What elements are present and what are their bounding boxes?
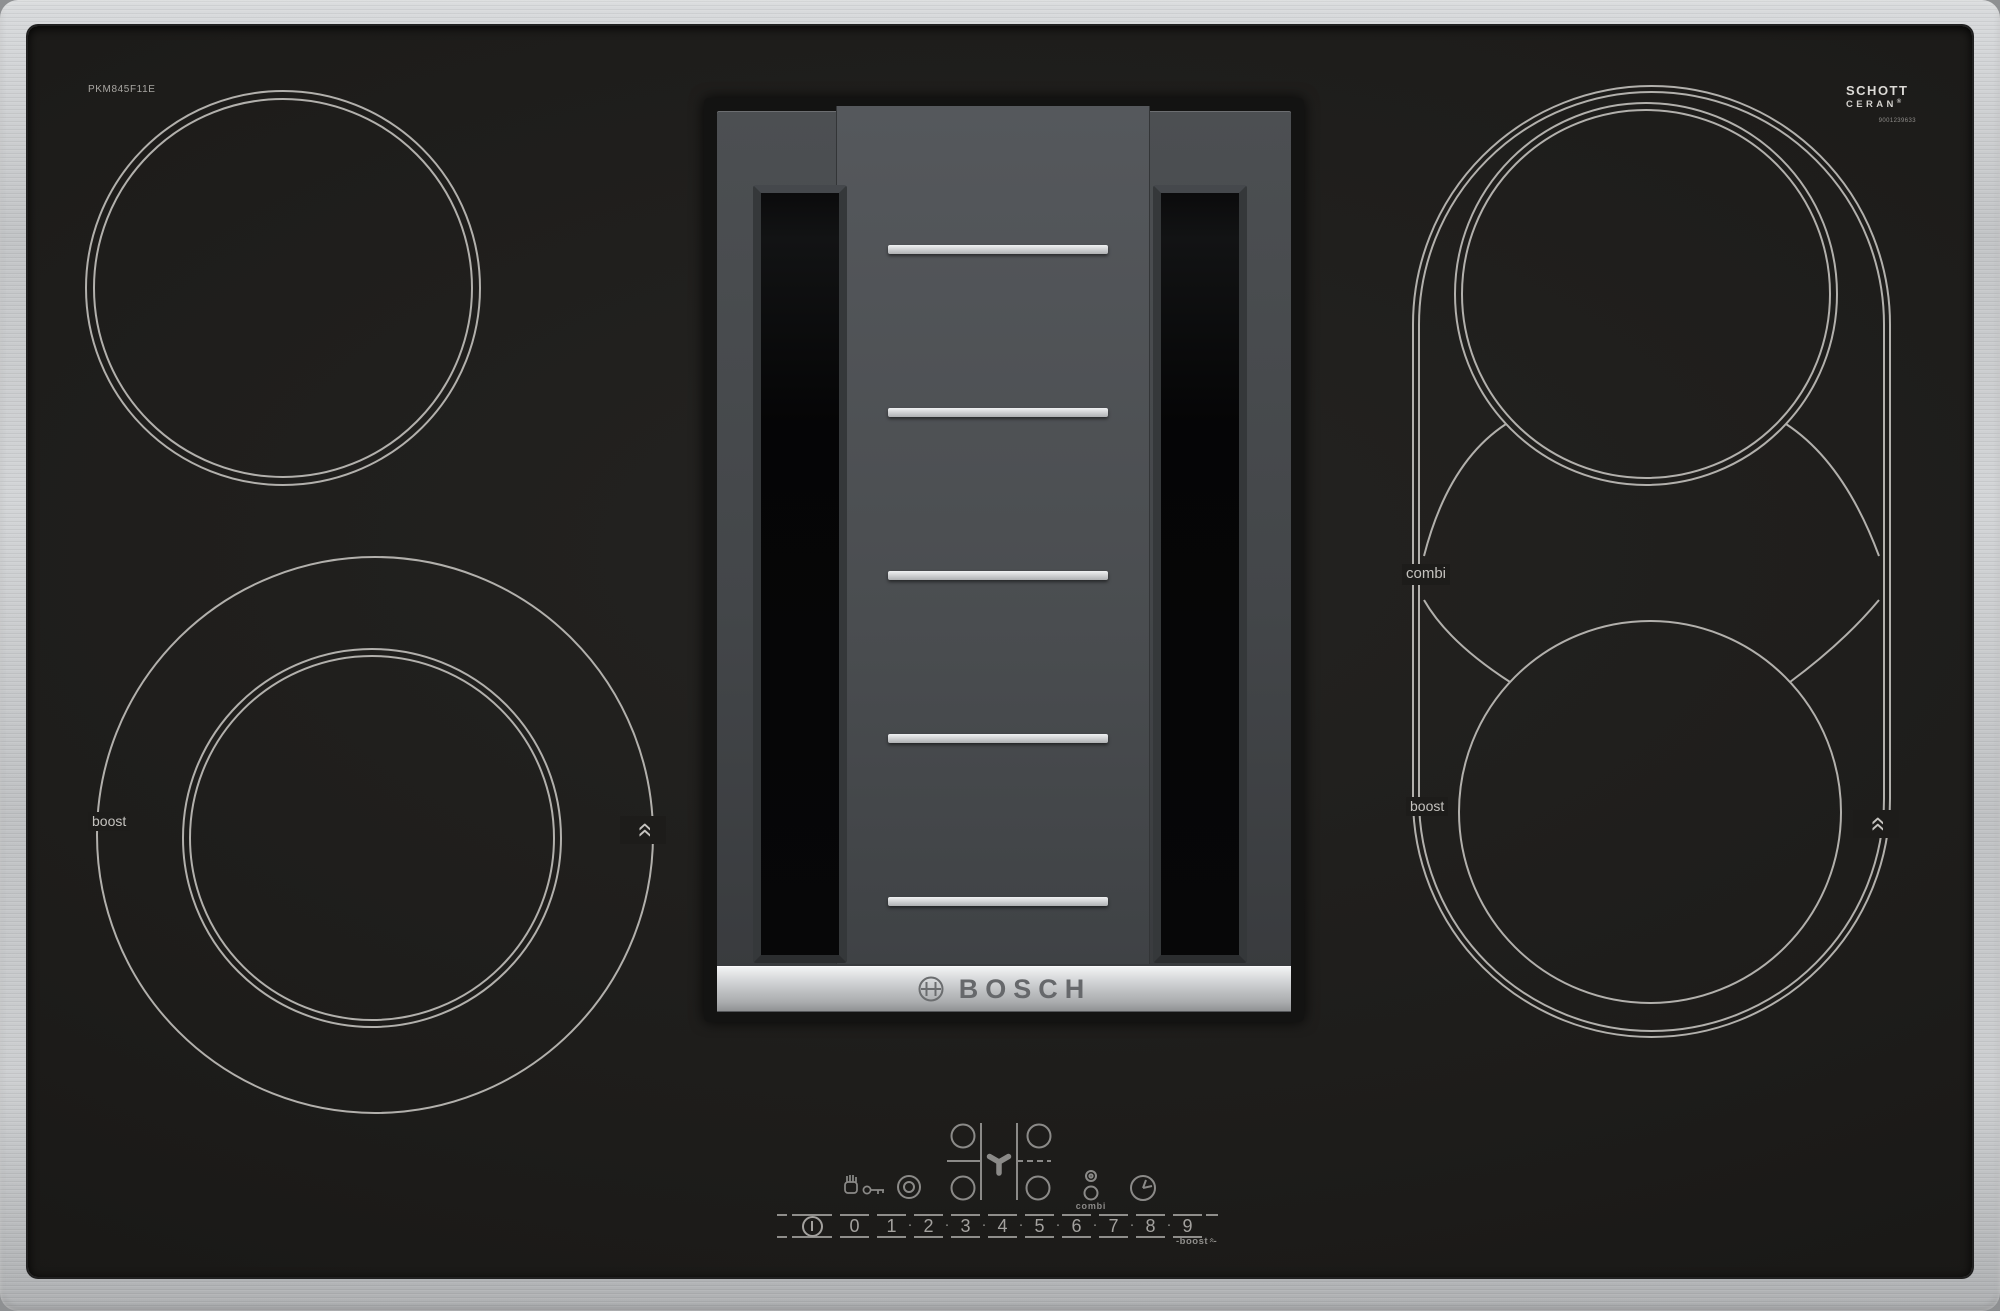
registered-mark: ®	[1897, 99, 1901, 105]
boost-hint-label: boost	[1180, 1236, 1208, 1247]
rear-right-burner	[1455, 103, 1837, 485]
track-stub	[777, 1214, 787, 1238]
track-stub	[1206, 1214, 1218, 1238]
vent-center-panel	[836, 106, 1150, 964]
level-key-6[interactable]: 6	[1062, 1214, 1091, 1238]
level-separator-dot: ·	[906, 1214, 914, 1238]
boost-hint: -boost»-	[1176, 1236, 1217, 1247]
level-separator-dot: ·	[1128, 1214, 1136, 1238]
power-level-slider[interactable]: 0 1 · 2 · 3 · 4 · 5 · 6 · 7 · 8 · 9 -boo…	[777, 1214, 1218, 1238]
level-key-7[interactable]: 7	[1099, 1214, 1128, 1238]
front-left-burner	[97, 557, 653, 1113]
rear-left-burner	[86, 91, 480, 485]
front-left-boost-label: boost	[88, 812, 130, 831]
combi-key-label[interactable]: combi	[1071, 1201, 1111, 1211]
vent-grille-bar	[888, 245, 1108, 254]
level-separator-dot: ·	[980, 1214, 988, 1238]
filter-slot-opening	[761, 193, 839, 955]
fan-icon	[990, 1157, 1009, 1174]
level-key-1[interactable]: 1	[877, 1214, 906, 1238]
schott-ceran-logo: SCHOTT CERAN® 9001239633	[1846, 84, 1916, 124]
right-combi-label: combi	[1402, 564, 1450, 585]
vent-zone-selector[interactable]	[947, 1123, 1051, 1200]
level-separator-dot: ·	[1054, 1214, 1062, 1238]
power-icon	[802, 1216, 823, 1237]
level-key-2[interactable]: 2	[914, 1214, 943, 1238]
level-separator-dot: ·	[1091, 1214, 1099, 1238]
hand-key-lock-icon[interactable]	[845, 1175, 884, 1194]
filter-slot-opening	[1161, 193, 1239, 955]
zone-select-circle[interactable]	[952, 1177, 975, 1200]
serial-number: 9001239633	[1846, 118, 1916, 125]
level-separator-dot: ·	[943, 1214, 951, 1238]
right-boost-label: boost	[1406, 797, 1448, 816]
vent-module: BOSCH	[704, 98, 1304, 1022]
zone-select-circle[interactable]	[952, 1125, 975, 1148]
boost-chevron-icon: »	[620, 816, 666, 844]
level-key-3[interactable]: 3	[951, 1214, 980, 1238]
double-ring-icon[interactable]	[898, 1176, 920, 1198]
vent-grille-bar	[888, 408, 1108, 417]
level-gap	[869, 1214, 877, 1238]
level-separator-dot: ·	[1017, 1214, 1025, 1238]
level-key-0[interactable]: 0	[840, 1214, 869, 1238]
zone-select-circle[interactable]	[1027, 1177, 1050, 1200]
ceran-line: CERAN®	[1846, 99, 1916, 111]
front-right-burner	[1459, 621, 1841, 1003]
vent-grille-bar	[888, 897, 1108, 906]
level-key-9[interactable]: 9	[1173, 1214, 1202, 1238]
zone-select-circle[interactable]	[1028, 1125, 1051, 1148]
model-number: PKM845F11E	[88, 84, 156, 95]
boost-chevron-icon: »	[1853, 810, 1899, 838]
brand-strip: BOSCH	[717, 966, 1291, 1012]
power-key[interactable]	[792, 1214, 832, 1238]
level-key-8[interactable]: 8	[1136, 1214, 1165, 1238]
combi-zones-icon[interactable]	[1085, 1171, 1098, 1200]
level-key-5[interactable]: 5	[1025, 1214, 1054, 1238]
grease-filter-slot-right	[1153, 185, 1247, 963]
level-key-4[interactable]: 4	[988, 1214, 1017, 1238]
schott-line: SCHOTT	[1846, 84, 1916, 98]
right-combi-zone-outline	[1413, 86, 1890, 1037]
vent-grille-bar	[888, 571, 1108, 580]
vent-grille-bar	[888, 734, 1108, 743]
grease-filter-slot-left	[753, 185, 847, 963]
timer-clock-icon[interactable]	[1131, 1176, 1155, 1200]
brand-wordmark: BOSCH	[959, 974, 1092, 1005]
boost-chevron-icon: »	[1206, 1237, 1216, 1243]
level-separator-dot: ·	[1165, 1214, 1173, 1238]
bosch-logo-icon	[917, 975, 945, 1003]
